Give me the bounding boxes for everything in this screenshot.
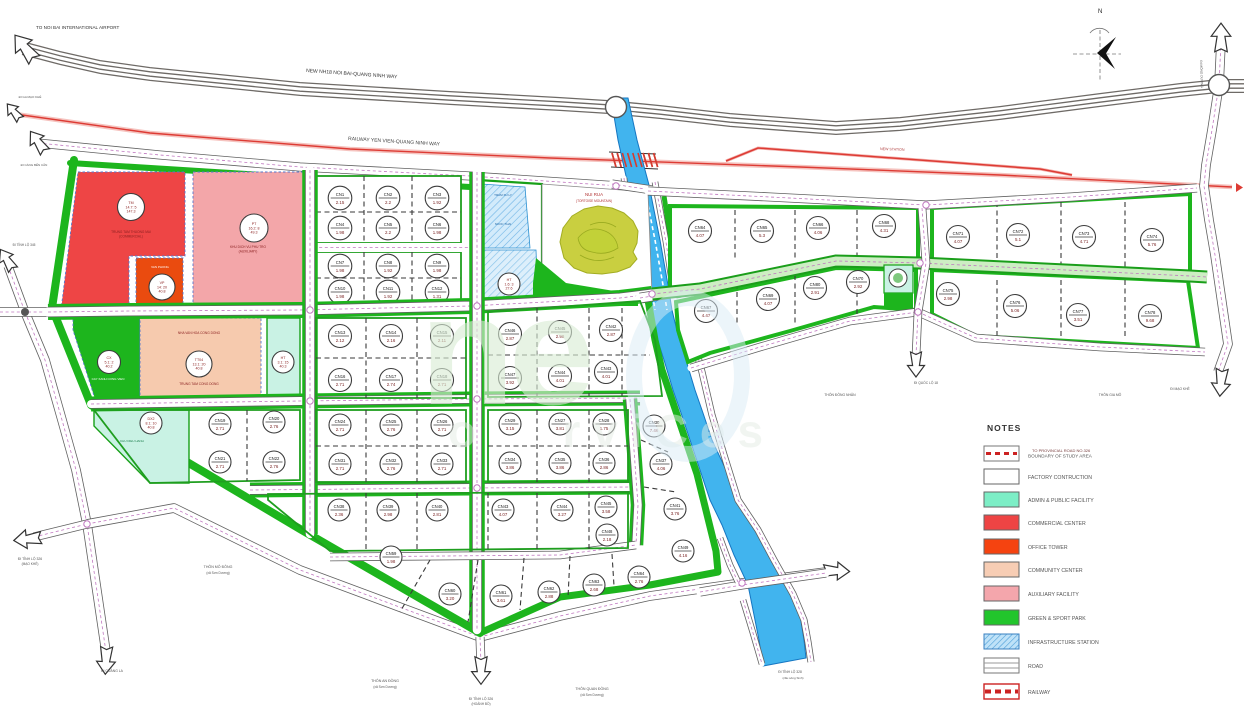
svg-text:16.2: 8: 16.2: 8 — [249, 226, 260, 230]
svg-text:4.07: 4.07 — [764, 301, 773, 306]
svg-text:NUOC THAI: NUOC THAI — [495, 222, 512, 226]
svg-text:OFFICE TOWER: OFFICE TOWER — [1028, 545, 1068, 551]
svg-text:ĐI QUỐC LỘ 18: ĐI QUỐC LỘ 18 — [914, 380, 938, 385]
svg-text:(HOÀNH BỒ): (HOÀNH BỒ) — [471, 701, 490, 706]
svg-text:TO NOI BAI INTERNATIONAL AIRPO: TO NOI BAI INTERNATIONAL AIRPORT — [36, 25, 119, 30]
svg-text:40.3: 40.3 — [280, 365, 287, 369]
svg-text:CN6: CN6 — [433, 222, 442, 227]
svg-text:3.1: 15: 3.1: 15 — [278, 360, 289, 364]
svg-text:ĐI TỈNH LỘ 326: ĐI TỈNH LỘ 326 — [469, 696, 493, 701]
svg-text:AUXILIARY FACILITY: AUXILIARY FACILITY — [1028, 592, 1079, 598]
svg-text:4.07: 4.07 — [696, 233, 705, 238]
svg-text:1.92: 1.92 — [433, 200, 442, 205]
svg-text:THÔN MỎ ĐÔNG: THÔN MỎ ĐÔNG — [204, 564, 233, 569]
svg-text:CN64: CN64 — [634, 571, 645, 576]
svg-text:CN42: CN42 — [606, 324, 617, 329]
svg-text:3.58: 3.58 — [602, 509, 611, 514]
svg-text:(AUXILIARY): (AUXILIARY) — [239, 250, 258, 254]
svg-text:1.98: 1.98 — [433, 230, 442, 235]
svg-text:ĐI GA MẠO KHÊ: ĐI GA MẠO KHÊ — [19, 94, 42, 99]
svg-text:KHU DICH VU PHU TRO: KHU DICH VU PHU TRO — [230, 245, 266, 249]
svg-text:COMMUNITY CENTER: COMMUNITY CENTER — [1028, 568, 1083, 574]
svg-text:2.71: 2.71 — [438, 466, 447, 471]
svg-text:CN32: CN32 — [386, 458, 397, 463]
svg-text:13.1: 20: 13.1: 20 — [193, 362, 206, 366]
svg-text:CN1: CN1 — [336, 192, 345, 197]
svg-text:ĐI CẢNG BẾN CÂN: ĐI CẢNG BẾN CÂN — [21, 162, 48, 167]
svg-text:(MẠO KHÊ): (MẠO KHÊ) — [22, 561, 39, 566]
svg-text:CN77: CN77 — [1073, 309, 1084, 314]
svg-text:2.18: 2.18 — [603, 537, 612, 542]
svg-text:CN7: CN7 — [336, 260, 345, 265]
svg-text:CN48: CN48 — [602, 529, 613, 534]
svg-text:CN44: CN44 — [557, 504, 568, 509]
svg-text:CN74: CN74 — [1147, 234, 1158, 239]
svg-text:CN8: CN8 — [384, 260, 393, 265]
svg-text:CN63: CN63 — [589, 579, 600, 584]
svg-text:2.86: 2.86 — [600, 465, 609, 470]
svg-text:14: 20: 14: 20 — [157, 285, 167, 289]
svg-text:CN21: CN21 — [215, 456, 226, 461]
svg-text:CN45: CN45 — [601, 501, 612, 506]
svg-text:HT: HT — [281, 356, 287, 360]
svg-text:CN36: CN36 — [599, 457, 610, 462]
svg-text:(xã Sơn Dương): (xã Sơn Dương) — [373, 685, 396, 689]
svg-text:CN73: CN73 — [1079, 231, 1090, 236]
svg-text:THÔN GIA MÔ: THÔN GIA MÔ — [1099, 392, 1122, 397]
svg-text:CN14: CN14 — [386, 330, 397, 335]
svg-text:CAY XANH CONG VIEN: CAY XANH CONG VIEN — [92, 377, 125, 381]
svg-text:(TORTOISE MOUNTAIN): (TORTOISE MOUNTAIN) — [576, 199, 612, 203]
svg-text:THÔN ĐÔNG NHÂN: THÔN ĐÔNG NHÂN — [824, 392, 856, 397]
svg-text:CN20: CN20 — [269, 416, 280, 421]
svg-text:2.2: 2.2 — [385, 200, 392, 205]
svg-text:CN4: CN4 — [336, 222, 345, 227]
svg-text:CN3: CN3 — [433, 192, 442, 197]
svg-text:2.71: 2.71 — [216, 426, 225, 431]
svg-text:CN22: CN22 — [269, 456, 280, 461]
svg-text:8.1: 10: 8.1: 10 — [146, 421, 157, 425]
svg-text:BOUNDARY OF STUDY AREA: BOUNDARY OF STUDY AREA — [1028, 454, 1093, 459]
svg-text:2.68: 2.68 — [590, 587, 599, 592]
svg-text:CN31: CN31 — [335, 458, 346, 463]
svg-text:CN2: CN2 — [384, 192, 393, 197]
svg-text:CN65: CN65 — [757, 225, 768, 230]
svg-text:CN70: CN70 — [853, 276, 864, 281]
svg-text:40.8: 40.8 — [196, 367, 203, 371]
svg-text:4.71: 4.71 — [1080, 239, 1089, 244]
svg-text:CN43: CN43 — [601, 366, 612, 371]
svg-text:(cầu sông Sinh): (cầu sông Sinh) — [782, 676, 803, 680]
svg-text:CN38: CN38 — [334, 504, 345, 509]
svg-text:2.76: 2.76 — [270, 464, 279, 469]
svg-text:TM: TM — [128, 201, 133, 205]
svg-text:CN75: CN75 — [943, 288, 954, 293]
svg-text:3.76: 3.76 — [671, 511, 680, 516]
svg-text:2.91: 2.91 — [811, 290, 820, 295]
svg-text:PT: PT — [252, 222, 257, 226]
svg-text:5.1: 5.1 — [1015, 237, 1022, 242]
svg-text:2.98: 2.98 — [944, 296, 953, 301]
svg-text:(xã Sơn Dương): (xã Sơn Dương) — [580, 693, 603, 697]
svg-text:2.74: 2.74 — [387, 382, 396, 387]
svg-text:CN61: CN61 — [496, 590, 507, 595]
svg-text:CN68: CN68 — [879, 220, 890, 225]
svg-text:COMMERCIAL CENTER: COMMERCIAL CENTER — [1028, 521, 1086, 527]
svg-text:2.36: 2.36 — [335, 512, 344, 517]
svg-text:(COMMERCIAL): (COMMERCIAL) — [119, 235, 143, 239]
svg-text:2.16: 2.16 — [387, 338, 396, 343]
svg-text:4.31: 4.31 — [880, 228, 889, 233]
svg-text:147.3: 147.3 — [127, 210, 136, 214]
svg-text:CN80: CN80 — [810, 282, 821, 287]
svg-text:CN24: CN24 — [335, 419, 346, 424]
svg-text:1.98: 1.98 — [336, 268, 345, 273]
svg-text:KHU DIEU HANH: KHU DIEU HANH — [120, 439, 144, 443]
svg-text:5.1: 2: 5.1: 2 — [105, 360, 114, 364]
svg-text:2.71: 2.71 — [216, 464, 225, 469]
svg-text:TT04: TT04 — [195, 358, 203, 362]
svg-text:CN66: CN66 — [813, 222, 824, 227]
svg-text:2.76: 2.76 — [387, 427, 396, 432]
svg-text:49.3: 49.3 — [251, 231, 258, 235]
svg-text:1.98: 1.98 — [336, 294, 345, 299]
svg-text:CN34: CN34 — [505, 457, 516, 462]
svg-text:2.76: 2.76 — [387, 466, 396, 471]
svg-text:CN11: CN11 — [383, 286, 394, 291]
svg-text:5.76: 5.76 — [1148, 242, 1157, 247]
svg-text:CN33: CN33 — [437, 458, 448, 463]
svg-text:4.01: 4.01 — [602, 374, 611, 379]
svg-text:VP: VP — [160, 281, 165, 285]
svg-text:4.16: 4.16 — [679, 553, 688, 558]
svg-text:TRUNG TAM THUONG MAI: TRUNG TAM THUONG MAI — [111, 230, 151, 234]
svg-text:FACTORY CONTRUCTION: FACTORY CONTRUCTION — [1028, 475, 1092, 481]
svg-text:CN49: CN49 — [678, 545, 689, 550]
svg-text:2.87: 2.87 — [607, 332, 616, 337]
svg-text:CN35: CN35 — [555, 457, 566, 462]
svg-text:2.2: 2.2 — [385, 230, 392, 235]
svg-text:CN16: CN16 — [335, 374, 346, 379]
svg-text:CX: CX — [107, 356, 113, 360]
svg-text:DX2: DX2 — [148, 417, 155, 421]
svg-text:CN13: CN13 — [335, 330, 346, 335]
svg-text:CN39: CN39 — [383, 504, 394, 509]
svg-text:CN62: CN62 — [544, 586, 555, 591]
svg-text:3.27: 3.27 — [558, 512, 567, 517]
svg-text:CN10: CN10 — [335, 286, 346, 291]
svg-text:CN43: CN43 — [498, 504, 509, 509]
svg-text:4.06: 4.06 — [657, 466, 666, 471]
svg-text:2.71: 2.71 — [336, 466, 345, 471]
svg-text:CN78: CN78 — [1145, 310, 1156, 315]
svg-text:CN72: CN72 — [1013, 229, 1024, 234]
svg-text:TO PROVINCIAL ROAD NO.326: TO PROVINCIAL ROAD NO.326 — [1032, 448, 1091, 453]
svg-text:CN59: CN59 — [386, 551, 397, 556]
svg-text:2.88: 2.88 — [545, 594, 554, 599]
svg-text:CN19: CN19 — [215, 418, 226, 423]
svg-text:4.07: 4.07 — [954, 239, 963, 244]
svg-text:GREEN & SPORT PARK: GREEN & SPORT PARK — [1028, 616, 1086, 622]
svg-text:NOTES: NOTES — [987, 423, 1021, 433]
svg-text:NUI RUA: NUI RUA — [585, 192, 603, 197]
svg-text:2.76: 2.76 — [635, 579, 644, 584]
svg-text:1.98: 1.98 — [336, 230, 345, 235]
svg-text:ĐI TỈNH LỘ 328: ĐI TỈNH LỘ 328 — [778, 669, 802, 674]
svg-text:CN25: CN25 — [386, 419, 397, 424]
svg-text:ĐI MÔNG DƯƠNG: ĐI MÔNG DƯƠNG — [1199, 60, 1205, 88]
svg-text:ĐI QUẢNG LA: ĐI QUẢNG LA — [101, 668, 124, 673]
svg-text:CN37: CN37 — [656, 458, 667, 463]
svg-text:ĐI MẠO KHÊ: ĐI MẠO KHÊ — [1170, 386, 1190, 391]
svg-text:3.86: 3.86 — [506, 465, 515, 470]
svg-text:ADMIN & PUBLIC FACILITY: ADMIN & PUBLIC FACILITY — [1028, 498, 1094, 504]
svg-text:3.86: 3.86 — [556, 465, 565, 470]
svg-text:5.06: 5.06 — [1011, 308, 1020, 313]
svg-text:2.71: 2.71 — [336, 427, 345, 432]
svg-text:CN41: CN41 — [670, 503, 681, 508]
svg-text:(xã Sơn Dương): (xã Sơn Dương) — [206, 571, 229, 575]
svg-text:2.98: 2.98 — [384, 512, 393, 517]
svg-text:2.81: 2.81 — [433, 512, 442, 517]
svg-text:TRAM XU LY: TRAM XU LY — [494, 193, 512, 197]
svg-text:ROAD: ROAD — [1028, 664, 1043, 670]
svg-text:1.98: 1.98 — [387, 559, 396, 564]
svg-text:THÔN AN ĐỒNG: THÔN AN ĐỒNG — [371, 678, 399, 683]
svg-text:NHA VAN HOA CONG DONG: NHA VAN HOA CONG DONG — [178, 331, 221, 335]
svg-text:4.06: 4.06 — [814, 230, 823, 235]
svg-text:THÔN QUAN ĐỒNG: THÔN QUAN ĐỒNG — [575, 686, 609, 691]
svg-text:N: N — [1098, 9, 1102, 15]
svg-text:CN40: CN40 — [432, 504, 443, 509]
svg-text:4.07: 4.07 — [499, 512, 508, 517]
svg-text:CN5: CN5 — [384, 222, 393, 227]
svg-text:VAN PHONG: VAN PHONG — [151, 265, 169, 269]
svg-text:3.51: 3.51 — [1074, 317, 1083, 322]
svg-text:INFRASTRUCTURE STATION: INFRASTRUCTURE STATION — [1028, 640, 1099, 646]
svg-text:3.20: 3.20 — [446, 596, 455, 601]
svg-text:CN69: CN69 — [763, 293, 774, 298]
svg-text:RAILWAY: RAILWAY — [1028, 690, 1051, 696]
svg-text:40.8: 40.8 — [159, 290, 166, 294]
svg-text:14.7: 5: 14.7: 5 — [126, 205, 137, 209]
svg-text:CN64: CN64 — [695, 225, 706, 230]
svg-text:2.76: 2.76 — [270, 424, 279, 429]
svg-text:TRUNG TAM CONG DONG: TRUNG TAM CONG DONG — [179, 382, 219, 386]
svg-text:3.61: 3.61 — [497, 598, 506, 603]
svg-text:CN71: CN71 — [953, 231, 964, 236]
svg-text:9.68: 9.68 — [1146, 318, 1155, 323]
svg-text:5.3: 5.3 — [759, 233, 766, 238]
svg-text:2.15: 2.15 — [336, 200, 345, 205]
svg-text:ĐI TỈNH LỘ 345: ĐI TỈNH LỘ 345 — [13, 242, 36, 247]
svg-text:1.92: 1.92 — [384, 268, 393, 273]
svg-text:2.12: 2.12 — [336, 338, 345, 343]
svg-text:CN60: CN60 — [445, 588, 456, 593]
svg-text:2.71: 2.71 — [336, 382, 345, 387]
svg-text:2.92: 2.92 — [854, 284, 863, 289]
svg-text:40.2: 40.2 — [106, 365, 113, 369]
svg-text:40.8: 40.8 — [148, 426, 155, 430]
svg-text:CN76: CN76 — [1010, 300, 1021, 305]
svg-text:CN17: CN17 — [386, 374, 397, 379]
svg-text:1.92: 1.92 — [384, 294, 393, 299]
svg-text:ĐI TỈNH LỘ 326: ĐI TỈNH LỘ 326 — [18, 556, 42, 561]
